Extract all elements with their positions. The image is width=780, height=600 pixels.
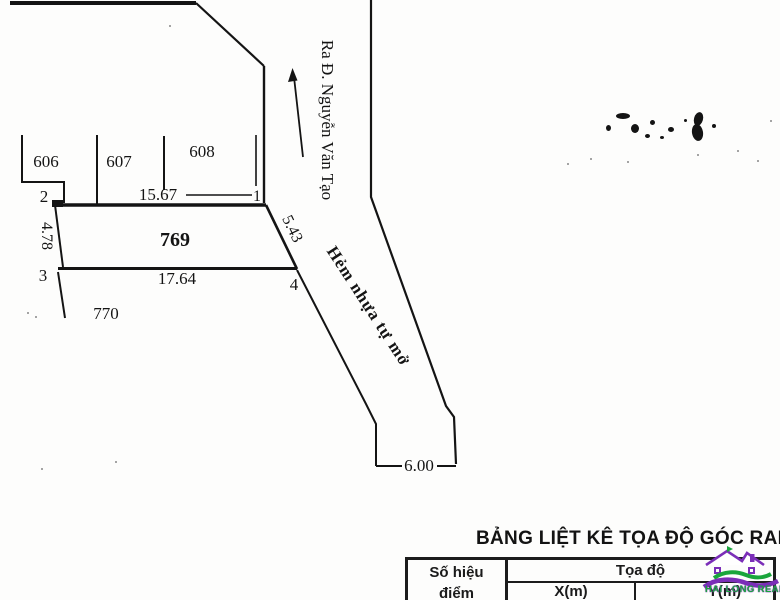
arrow-head-icon (288, 68, 298, 82)
corner-point-4: 4 (290, 275, 299, 294)
plot769-left-edge (55, 205, 63, 267)
column-header-x: X(m) (508, 583, 636, 600)
boundary-top-diagonal (196, 3, 264, 66)
watermark-brand-text: HAI LONG REAL (705, 584, 780, 595)
parcel-label-769: 769 (160, 229, 190, 251)
dimension-top: 15.67 (139, 185, 178, 204)
point-header-line1: Số hiệu (429, 562, 483, 583)
roof-flag-icon (727, 546, 733, 552)
street-direction-arrow (294, 77, 303, 157)
house-window-icon (715, 568, 720, 573)
house-chimney-icon (750, 554, 755, 562)
corner-point-1: 1 (253, 188, 261, 205)
alley-label: Hẻm nhựa tự mở (323, 243, 414, 370)
column-header-point-number: Số hiệu điểm (408, 560, 508, 600)
dimension-alley-width: 6.00 (404, 456, 434, 475)
street-direction-label: Ra Đ. Nguyễn Văn Tạo (318, 40, 337, 200)
house-window-icon (749, 568, 754, 573)
house-roof-icon (706, 551, 764, 565)
point-header-line2: điểm (439, 583, 474, 600)
plot770-boundary (58, 272, 65, 318)
green-wave-icon (714, 572, 771, 578)
corner-point-2: 2 (40, 187, 49, 206)
parcel-label-607: 607 (106, 152, 132, 171)
parcel-label-606: 606 (33, 152, 59, 171)
corner2-mark (52, 200, 63, 207)
cadastral-sketch: 606 607 608 769 770 2 1 3 4 15.67 17.64 … (0, 0, 780, 600)
corner-point-3: 3 (39, 266, 48, 285)
dimension-left: 4.78 (38, 222, 55, 250)
scanned-cadastral-document: 606 607 608 769 770 2 1 3 4 15.67 17.64 … (0, 0, 780, 600)
dimension-bottom: 17.64 (158, 269, 197, 288)
parcel-label-770: 770 (93, 304, 119, 323)
road-edge-right (371, 0, 456, 464)
parcel-label-608: 608 (189, 142, 215, 161)
